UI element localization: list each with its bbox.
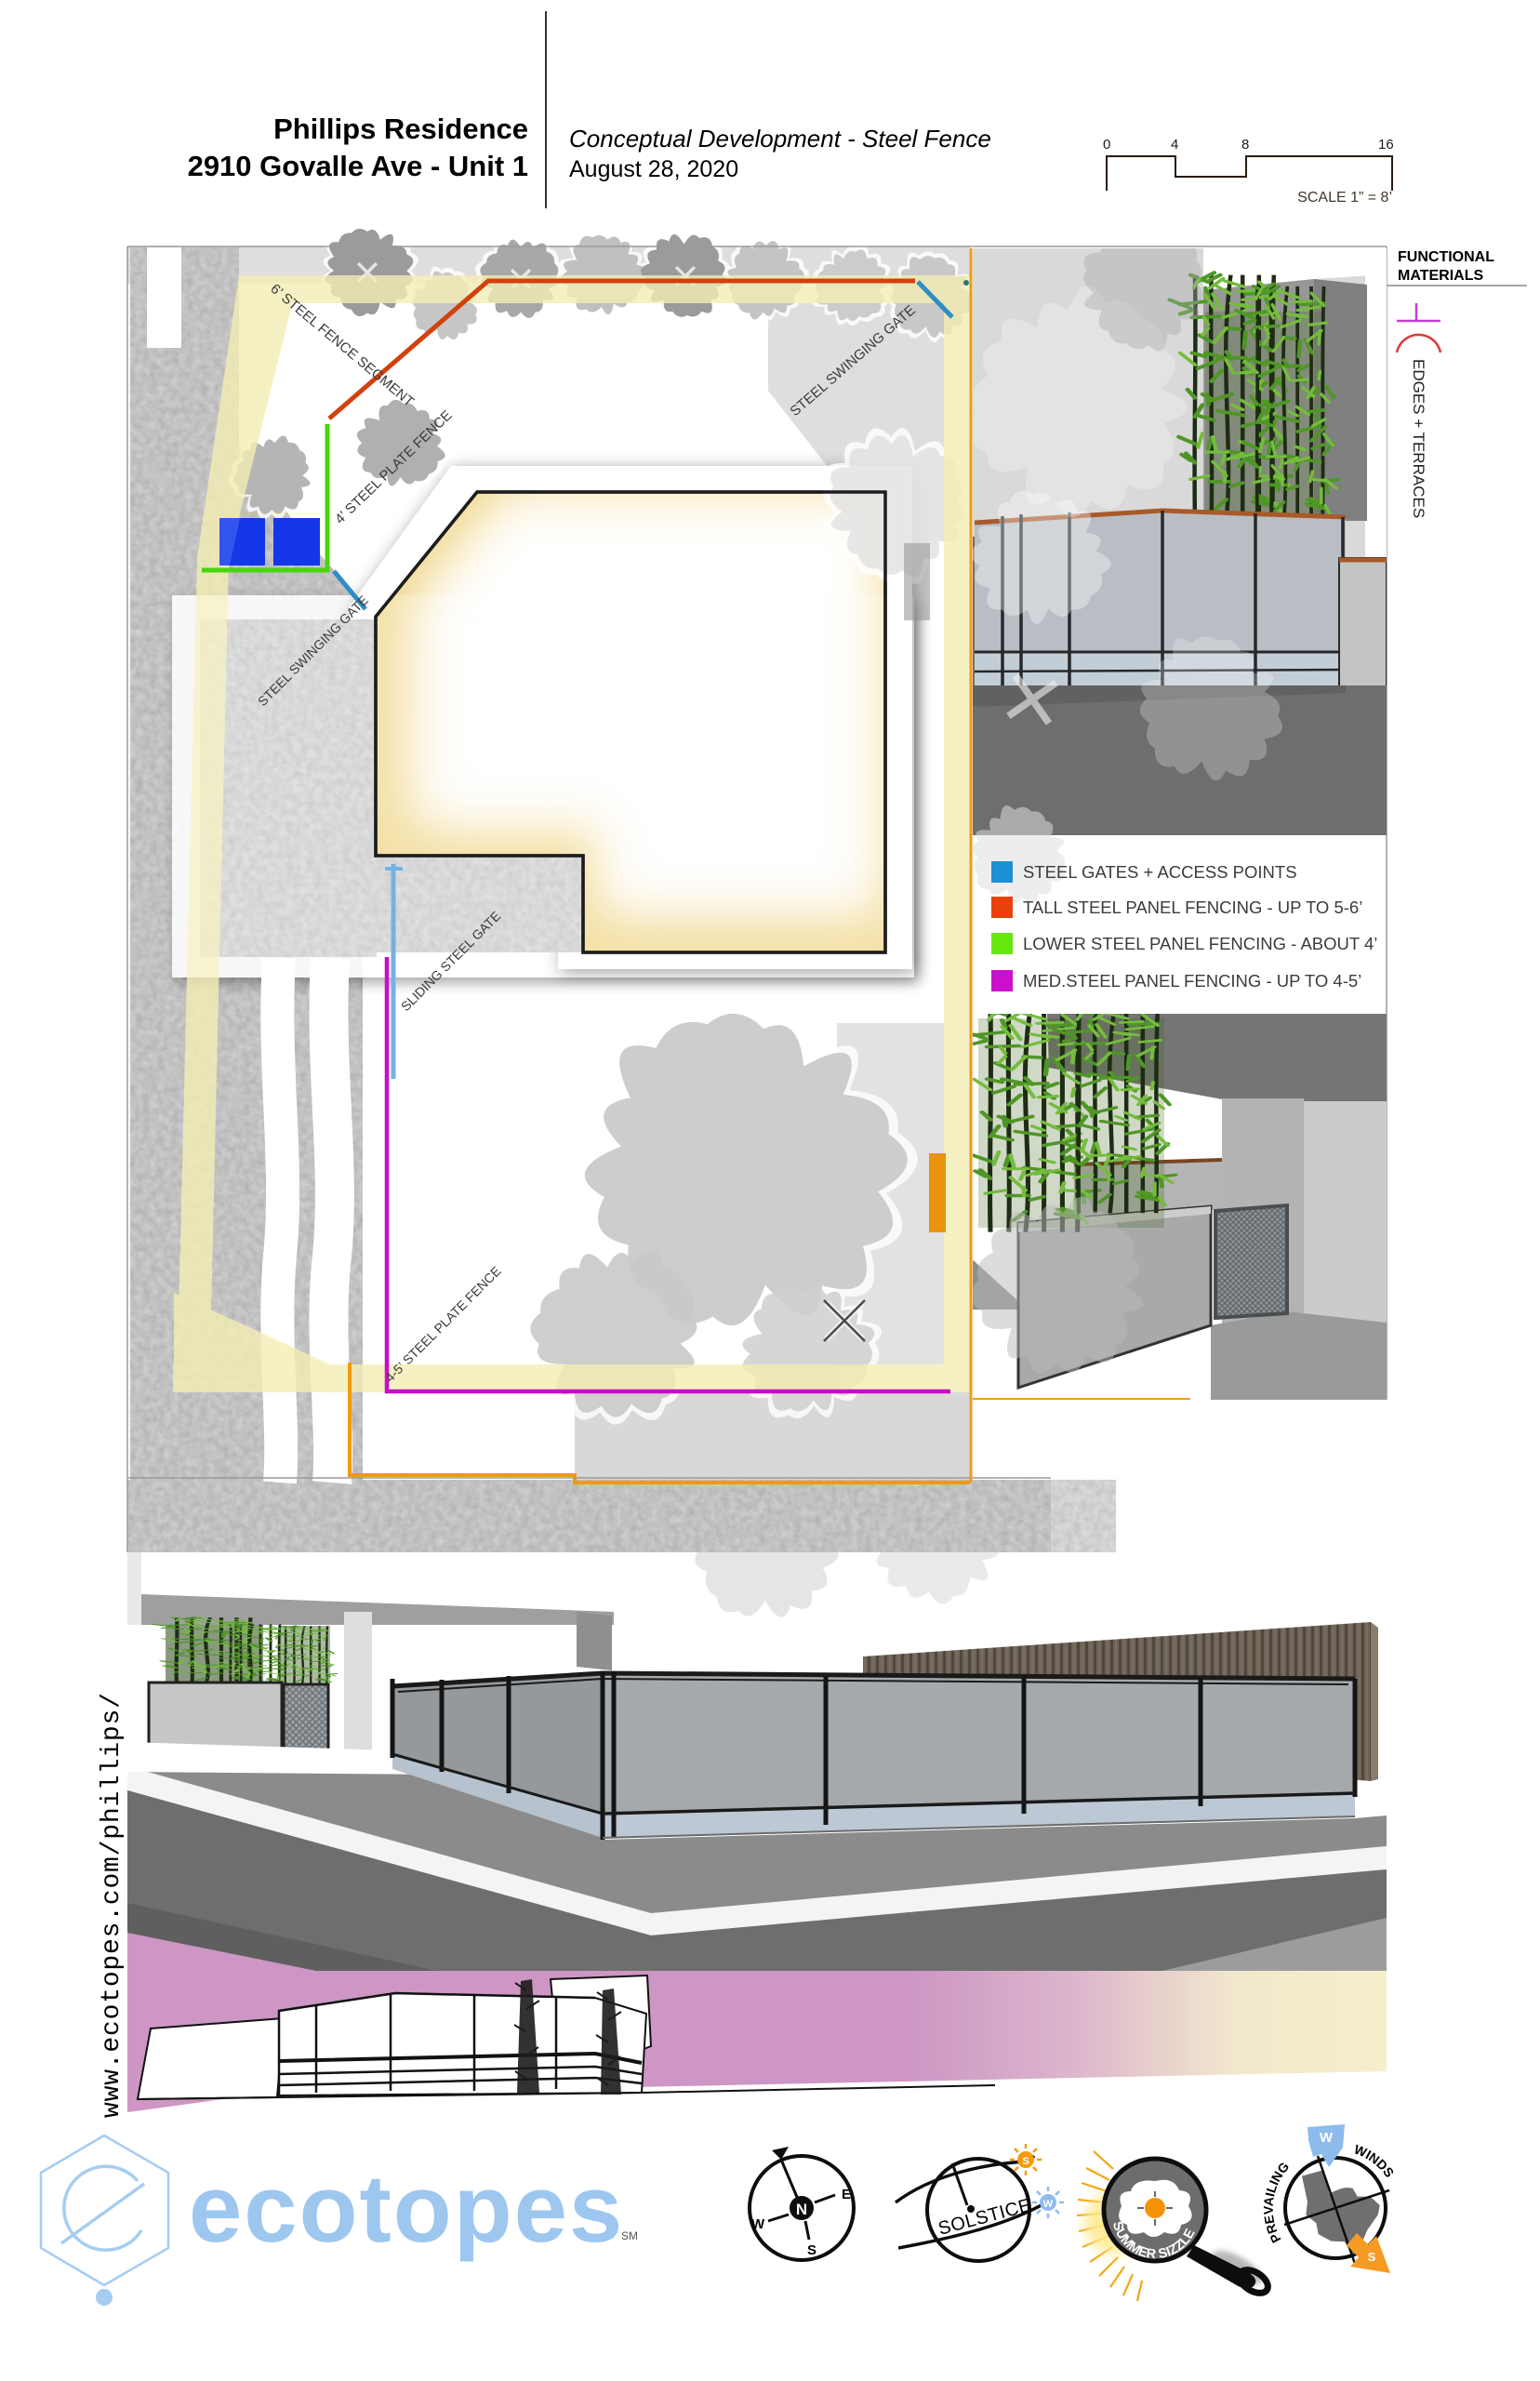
svg-text:0: 0: [1103, 137, 1110, 153]
svg-text:MED.STEEL PANEL FENCING - UP T: MED.STEEL PANEL FENCING - UP TO 4-5’: [1023, 971, 1361, 991]
svg-text:TALL STEEL PANEL FENCING - UP: TALL STEEL PANEL FENCING - UP TO 5-6’: [1023, 898, 1362, 917]
svg-text:EDGES + TERRACES: EDGES + TERRACES: [1410, 359, 1427, 518]
svg-text:SM: SM: [621, 2229, 638, 2242]
svg-text:2910 Govalle Ave - Unit 1: 2910 Govalle Ave - Unit 1: [188, 150, 528, 182]
svg-text:8: 8: [1241, 137, 1249, 153]
svg-text:LOWER STEEL PANEL FENCING - AB: LOWER STEEL PANEL FENCING - ABOUT 4’: [1023, 934, 1377, 953]
svg-text:S: S: [1022, 2156, 1029, 2167]
svg-text:www.ecotopes.com/phillips/: www.ecotopes.com/phillips/: [98, 1692, 126, 2118]
svg-text:FUNCTIONAL: FUNCTIONAL: [1398, 249, 1494, 265]
svg-text:W: W: [751, 2216, 765, 2232]
svg-text:Phillips Residence: Phillips Residence: [273, 113, 528, 145]
svg-text:E: E: [842, 2187, 851, 2202]
svg-text:16: 16: [1378, 137, 1394, 153]
svg-text:SCALE 1” = 8’: SCALE 1” = 8’: [1297, 190, 1392, 206]
svg-text:STEEL GATES + ACCESS POINTS: STEEL GATES + ACCESS POINTS: [1023, 862, 1297, 882]
svg-text:4: 4: [1171, 137, 1178, 153]
svg-text:ecotopes: ecotopes: [189, 2155, 624, 2262]
svg-text:W: W: [1320, 2130, 1334, 2146]
svg-text:N: N: [796, 2201, 807, 2218]
svg-text:MATERIALS: MATERIALS: [1398, 268, 1483, 284]
svg-text:Conceptual Development - Steel: Conceptual Development - Steel Fence: [569, 125, 991, 153]
svg-text:S: S: [807, 2242, 816, 2258]
svg-text:W: W: [1043, 2199, 1054, 2210]
svg-text:August 28, 2020: August 28, 2020: [569, 156, 738, 182]
svg-text:S: S: [1368, 2250, 1376, 2264]
